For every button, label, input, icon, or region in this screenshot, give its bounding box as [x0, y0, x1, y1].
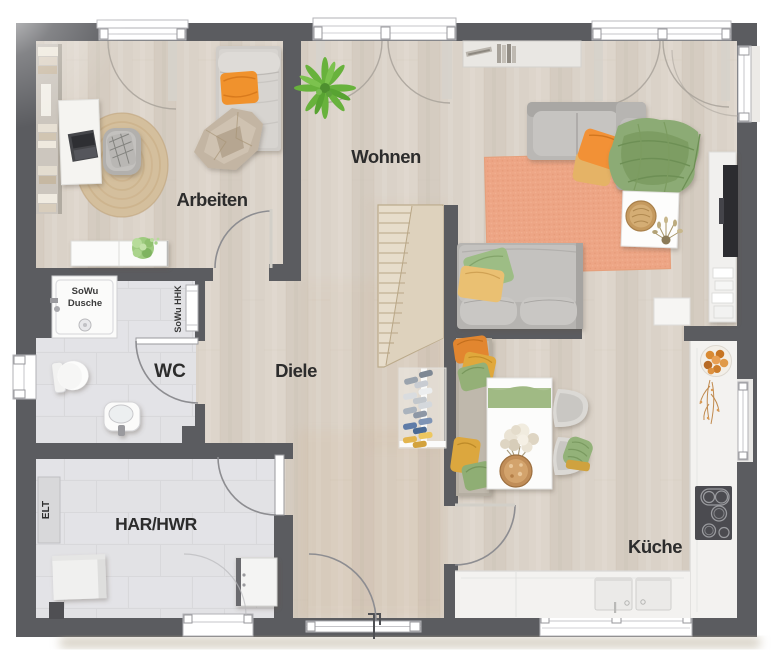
svg-text:Diele: Diele	[275, 360, 317, 381]
svg-text:HAR/HWR: HAR/HWR	[115, 514, 198, 534]
svg-text:WC: WC	[154, 361, 186, 382]
svg-text:SoWu HHK: SoWu HHK	[173, 285, 183, 333]
svg-text:Küche: Küche	[628, 536, 682, 557]
svg-text:Dusche: Dusche	[68, 298, 102, 309]
svg-text:SoWu: SoWu	[72, 286, 99, 297]
svg-text:Arbeiten: Arbeiten	[176, 189, 247, 210]
svg-text:ELT: ELT	[41, 501, 52, 519]
svg-text:Wohnen: Wohnen	[351, 146, 421, 167]
